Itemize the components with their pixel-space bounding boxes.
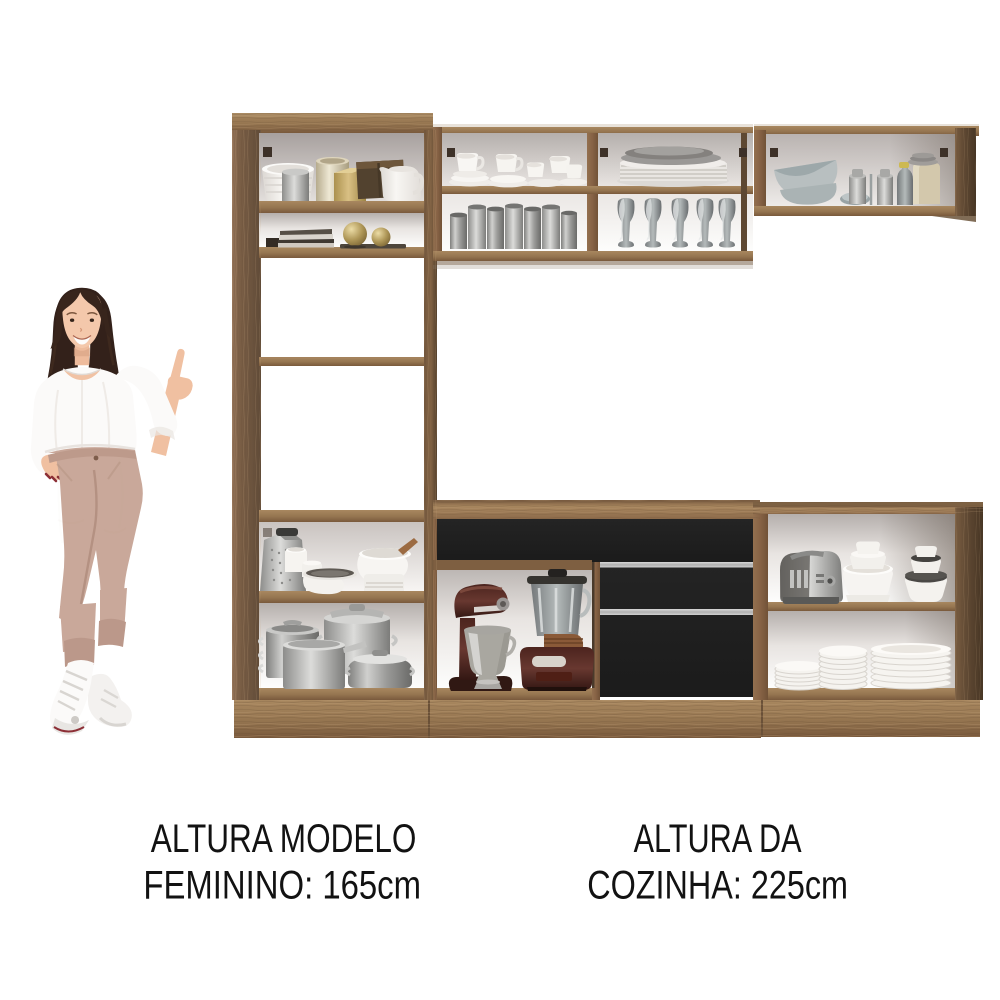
svg-text:ALTURA MODELO: ALTURA MODELO	[151, 817, 417, 861]
svg-text:ALTURA DA: ALTURA DA	[634, 817, 802, 861]
svg-text:FEMININO: 165cm: FEMININO: 165cm	[143, 864, 421, 908]
svg-text:COZINHA: 225cm: COZINHA: 225cm	[587, 864, 848, 908]
